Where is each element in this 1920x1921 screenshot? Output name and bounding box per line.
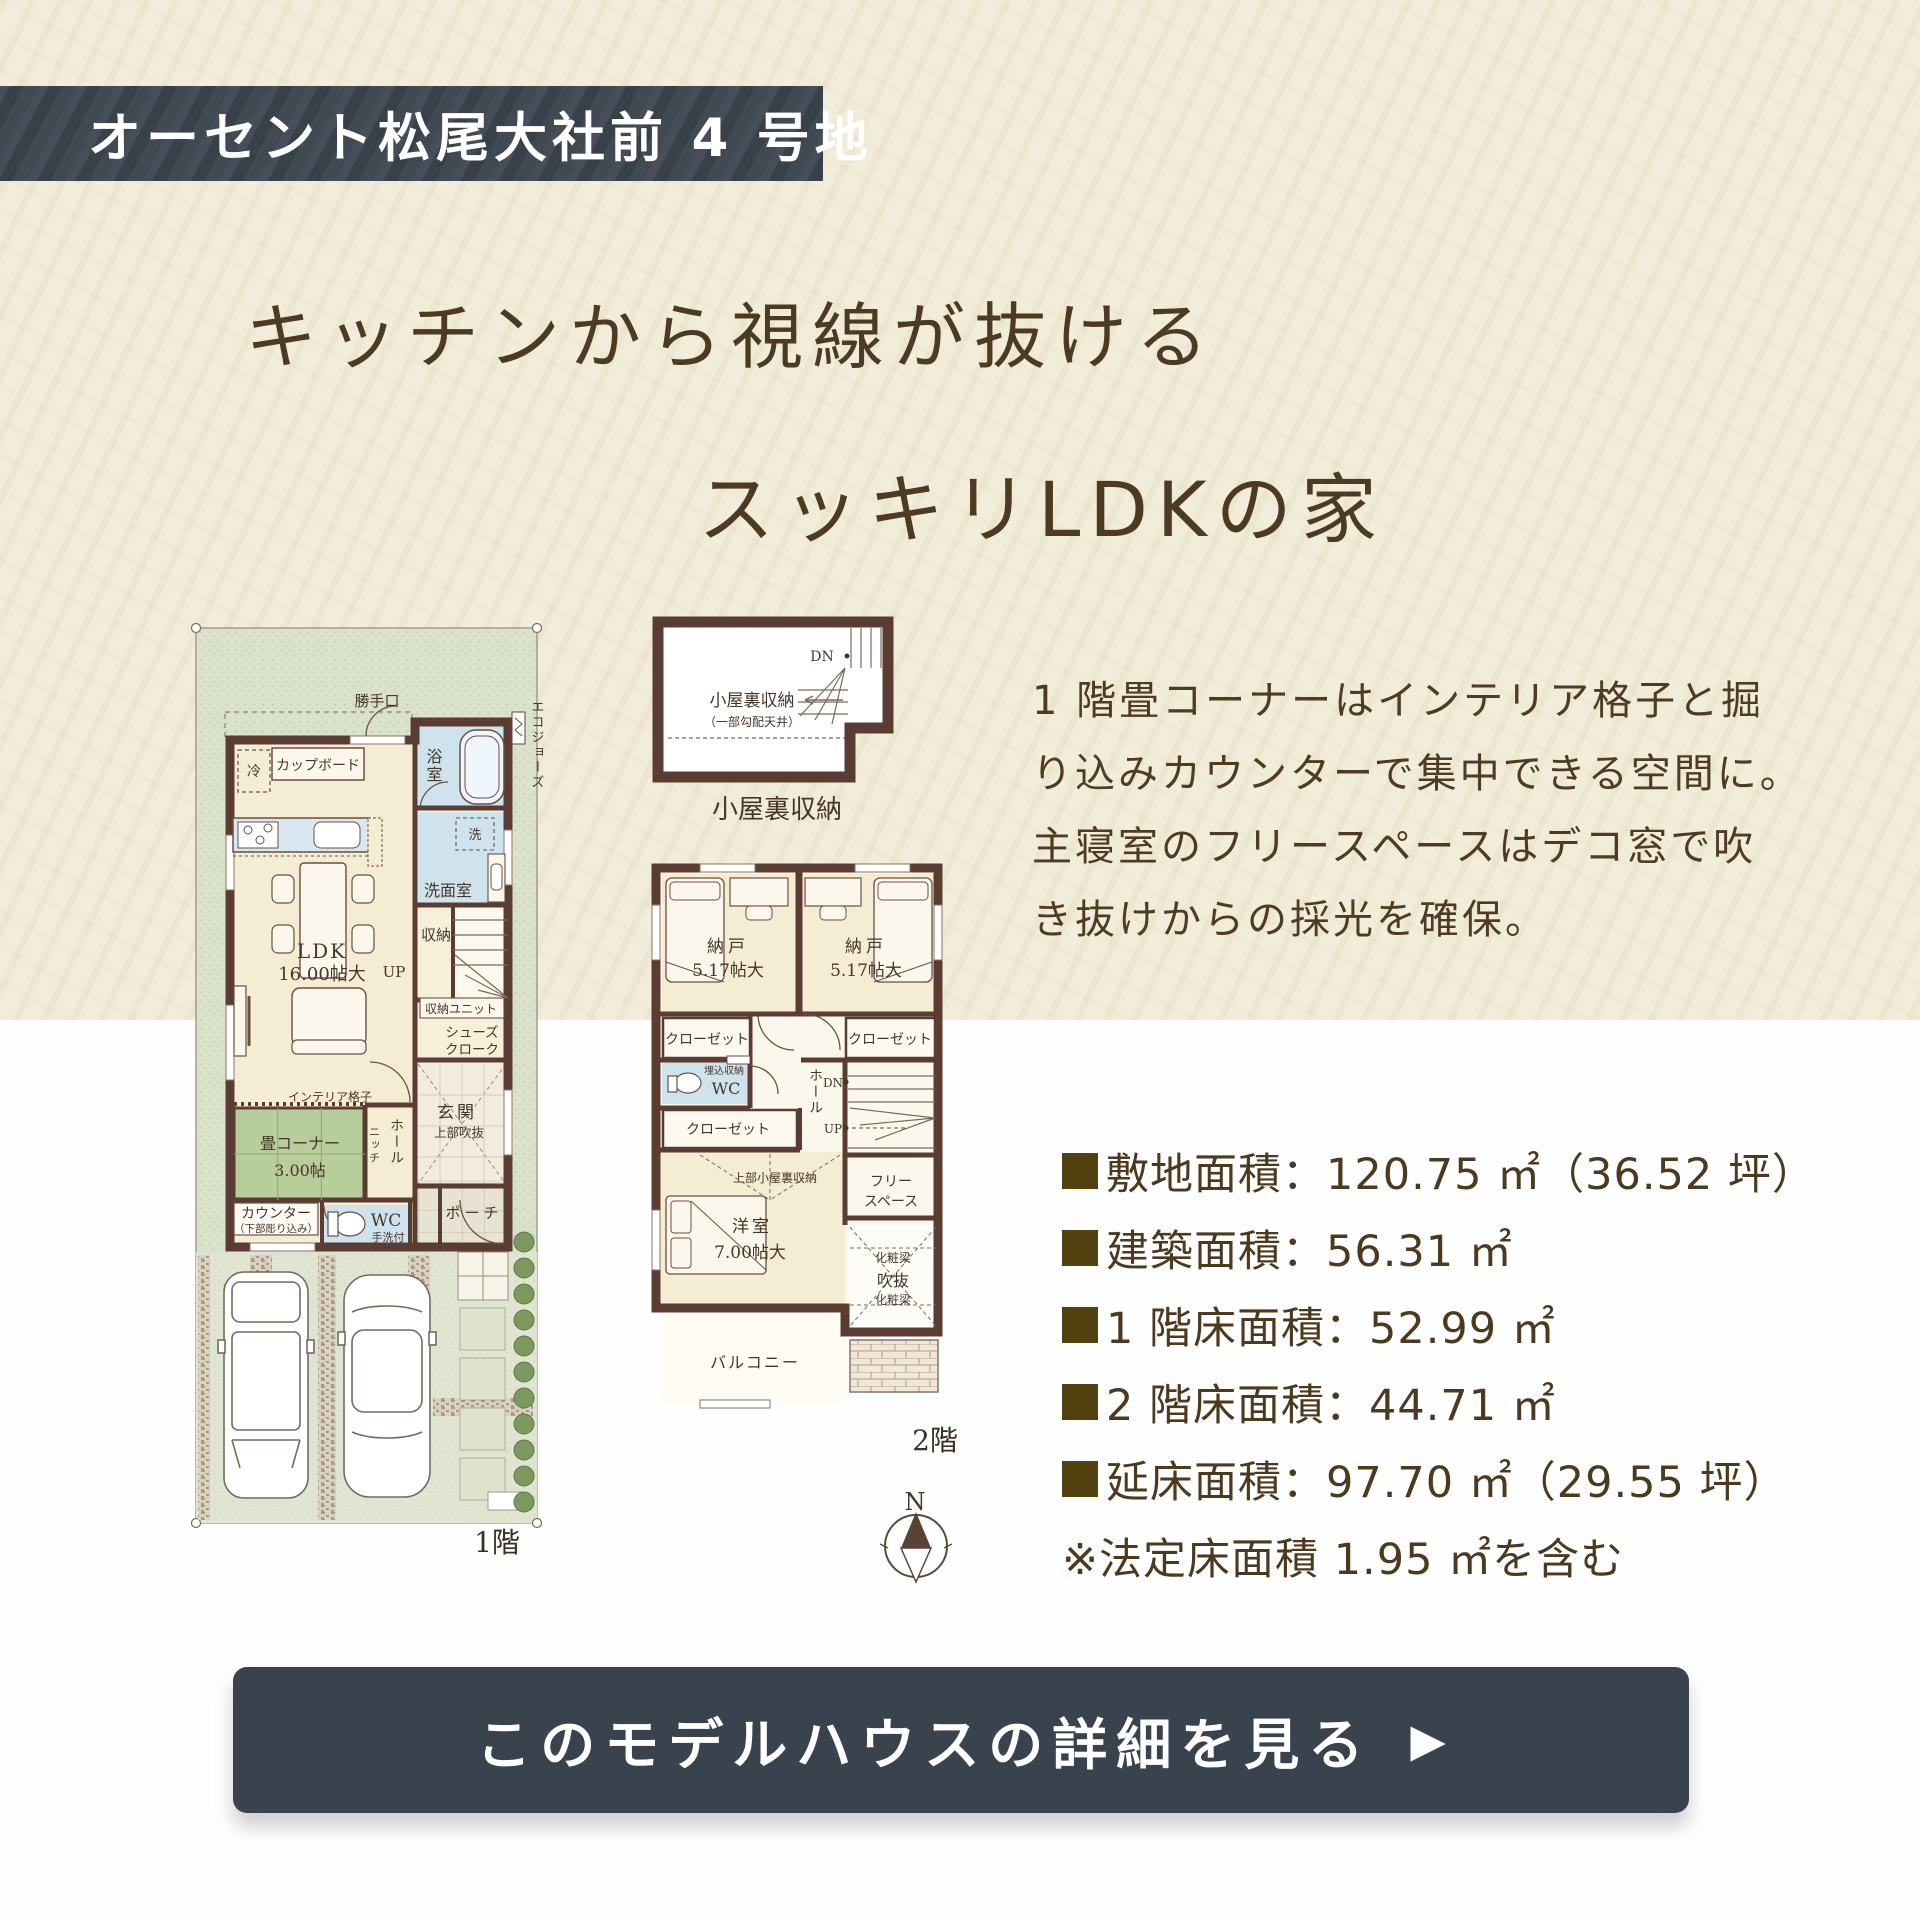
label-up-2f: UP	[824, 1122, 842, 1136]
spec-site-area: 敷地面積：120.75 ㎡（36.52 坪）	[1062, 1140, 1816, 1202]
label-attic-dn: DN	[810, 649, 833, 665]
label-shoes2: クローク	[445, 1042, 499, 1058]
caption-attic: 小屋裏収納	[712, 795, 842, 825]
label-interior-koshi: インテリア格子	[288, 1089, 372, 1104]
lot-name-badge: オーセント松尾大社前 4 号地	[0, 86, 823, 181]
model-house-detail-button[interactable]: このモデルハウスの詳細を見る ▶	[233, 1667, 1689, 1813]
label-porch: ポーチ	[445, 1204, 502, 1222]
label-genkan-note: 上部吹抜	[434, 1125, 485, 1140]
shrubs	[514, 1232, 534, 1512]
label-rei: 冷	[247, 764, 261, 780]
label-katteguchi: 勝手口	[354, 692, 399, 710]
description-line-1: 1 階畳コーナーはインテリア格子と掘	[1032, 668, 1764, 726]
compass-n-label: N	[905, 1488, 926, 1516]
label-yoshitsu: 洋室	[732, 1217, 772, 1237]
cta-label: このモデルハウスの詳細を見る	[476, 1700, 1372, 1780]
label-closet-l: クローゼット	[665, 1032, 749, 1048]
label-closet-b: クローゼット	[686, 1122, 770, 1138]
label-free2: スペース	[864, 1194, 918, 1210]
label-void: 吹抜	[877, 1271, 909, 1290]
label-niche: ニッチ	[368, 1126, 381, 1165]
flyer-page: オーセント松尾大社前 4 号地 キッチンから視線が抜ける スッキリLDKの家 1…	[0, 0, 1920, 1921]
label-cupboard: カップボード	[276, 758, 360, 774]
label-ecojozu: エコジョーズ	[529, 700, 544, 790]
spec-1f-floor-area: 1 階床面積：52.99 ㎡	[1062, 1294, 1556, 1356]
square-bullet-icon	[1062, 1307, 1098, 1343]
car-right	[338, 1275, 436, 1497]
label-washer: 洗	[468, 828, 481, 843]
label-shuno-unit: 収納ユニット	[425, 1002, 497, 1016]
headline-line1: キッチンから視線が抜ける	[245, 278, 1217, 383]
label-shoes1: シューズ	[445, 1025, 498, 1041]
label-up: UP	[383, 963, 406, 981]
label-yoshitsu-size: 7.00帖大	[714, 1243, 786, 1263]
label-nando-l: 納戸	[707, 937, 749, 957]
label-ldk: LDK	[297, 939, 347, 963]
spec-building-area: 建築面積：56.31 ㎡	[1062, 1217, 1513, 1279]
label-bath: 浴室	[424, 748, 443, 784]
caption-1f: 1階	[474, 1526, 520, 1559]
label-nando-r: 納戸	[845, 937, 887, 957]
square-bullet-icon	[1062, 1230, 1098, 1266]
label-closet-r: クローゼット	[848, 1032, 932, 1048]
description-line-4: き抜けからの採光を確保。	[1032, 887, 1548, 945]
square-bullet-icon	[1062, 1384, 1098, 1420]
label-nando-r-size: 5.17帖大	[830, 961, 902, 981]
dn-dot-2f	[844, 1080, 849, 1085]
arrow-right-icon: ▶	[1410, 1713, 1445, 1767]
label-ldk-size: 16.00帖大	[278, 964, 366, 985]
label-tatami-size: 3.00帖	[274, 1161, 326, 1180]
label-attic-note: （一部勾配天井）	[704, 714, 800, 729]
label-genkan: 玄関	[437, 1103, 477, 1123]
headline-line2: スッキリLDKの家	[698, 448, 1386, 558]
compass: N	[868, 1468, 968, 1598]
label-senmen: 洗面室	[424, 881, 472, 900]
label-shuno: 収納	[421, 926, 451, 944]
label-free1: フリー	[870, 1174, 912, 1190]
label-hall-1f: ホール	[388, 1118, 404, 1166]
floorplan-attic: DN 小屋裏収納 （一部勾配天井） 小屋裏収納	[640, 600, 900, 830]
label-balcony: バルコニー	[710, 1353, 800, 1372]
spec-total-floor-area: 延床面積：97.70 ㎡（29.55 坪）	[1062, 1448, 1788, 1510]
square-bullet-icon	[1062, 1461, 1098, 1497]
spec-2f-floor-area: 2 階床面積：44.71 ㎡	[1062, 1371, 1556, 1433]
spec-note: ※法定床面積 1.95 ㎡を含む	[1062, 1525, 1624, 1587]
caption-2f: 2階	[912, 1424, 958, 1457]
description-line-2: り込みカウンターで集中できる空間に。	[1032, 741, 1803, 799]
square-bullet-icon	[1062, 1153, 1098, 1189]
label-beam-top: 化粧梁	[875, 1250, 911, 1265]
label-wc-note-1f: 手洗付	[372, 1230, 405, 1244]
attic-dn-dot	[845, 654, 850, 659]
up-dot-2f	[844, 1126, 849, 1131]
label-wc-1f: WC	[371, 1211, 401, 1231]
floorplan-2f: 納戸 5.17帖大 納戸 5.17帖大 クローゼット クローゼット 埋込収納 W…	[640, 860, 970, 1460]
compass-needle-south	[901, 1548, 931, 1582]
label-beam-bottom: 化粧梁	[875, 1292, 911, 1307]
label-wc-2f: WC	[712, 1079, 741, 1098]
description-line-3: 主寝室のフリースペースはデコ窓で吹	[1032, 814, 1756, 872]
label-counter: カウンター	[241, 1206, 311, 1222]
label-nando-l-size: 5.17帖大	[692, 961, 764, 981]
label-attic-over: 上部小屋裏収納	[733, 1170, 817, 1185]
label-wc-note-2f: 埋込収納	[704, 1064, 744, 1077]
car-left	[218, 1272, 314, 1498]
label-tatami: 畳コーナー	[260, 1134, 340, 1153]
label-counter-note: （下部彫り込み）	[234, 1222, 318, 1235]
lot-name-label: オーセント松尾大社前 4 号地	[0, 96, 873, 172]
floorplan-1f: 勝手口 エコジョーズ 冷 カップボード 浴室 洗 洗面室 収納 LDK 16.0…	[155, 555, 555, 1585]
label-attic-room: 小屋裏収納	[710, 690, 795, 711]
label-dn-2f: DN	[823, 1076, 843, 1090]
label-hall-2f: ホール	[807, 1068, 823, 1116]
